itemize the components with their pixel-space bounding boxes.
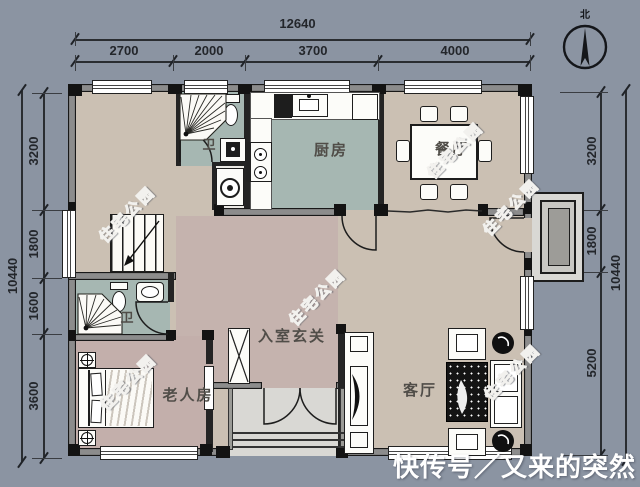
window	[184, 80, 228, 94]
room-label-bath-top: 卫	[200, 137, 220, 153]
dim-seg-2700: 2700	[94, 44, 154, 58]
window	[404, 80, 482, 94]
fridge-icon	[352, 94, 378, 120]
dim-left-3200: 3200	[27, 126, 41, 176]
room-label-elder-bedroom: 老人房	[158, 388, 218, 404]
chair	[420, 106, 438, 122]
dim-left-3600: 3600	[27, 371, 41, 421]
dim-left-total: 10440	[6, 246, 20, 306]
compass-north-icon	[564, 26, 606, 68]
room-label-bath-lower: 卫	[118, 310, 138, 326]
window	[520, 276, 534, 330]
chair	[396, 140, 410, 162]
room-label-foyer: 入室玄关	[247, 329, 337, 345]
dim-left-1600: 1600	[27, 281, 41, 331]
source-badge: 快传号／又来的突然	[393, 447, 636, 484]
dim-right-total: 10440	[609, 243, 623, 303]
toilet-icon	[110, 282, 128, 290]
dim-seg-3700: 3700	[283, 44, 343, 58]
lamp-icon	[81, 432, 93, 444]
lamp-icon	[81, 354, 93, 366]
dim-total-width: 12640	[255, 17, 340, 31]
kitchen-cabinet	[274, 94, 292, 118]
window	[92, 80, 152, 94]
dim-right-3200: 3200	[585, 126, 599, 176]
dim-seg-4000: 4000	[425, 44, 485, 58]
dim-seg-2000: 2000	[179, 44, 239, 58]
chair	[420, 184, 438, 200]
room-label-living: 客厅	[390, 383, 450, 399]
dim-right-5200: 5200	[585, 338, 599, 388]
window	[62, 210, 76, 278]
chair	[450, 106, 468, 122]
plant-icon	[492, 332, 514, 354]
window	[100, 446, 198, 460]
toilet-icon	[222, 94, 240, 103]
room-label-kitchen: 厨房	[301, 143, 361, 159]
floor-plan-image: 12640 2700 2000 3700 4000 10440 3200 180…	[0, 0, 640, 487]
window	[520, 96, 534, 174]
chair	[450, 184, 468, 200]
dim-right-1800: 1800	[585, 216, 599, 266]
dim-left-1800: 1800	[27, 219, 41, 269]
tv-icon	[350, 366, 368, 426]
compass-north-label: 北	[577, 6, 593, 21]
